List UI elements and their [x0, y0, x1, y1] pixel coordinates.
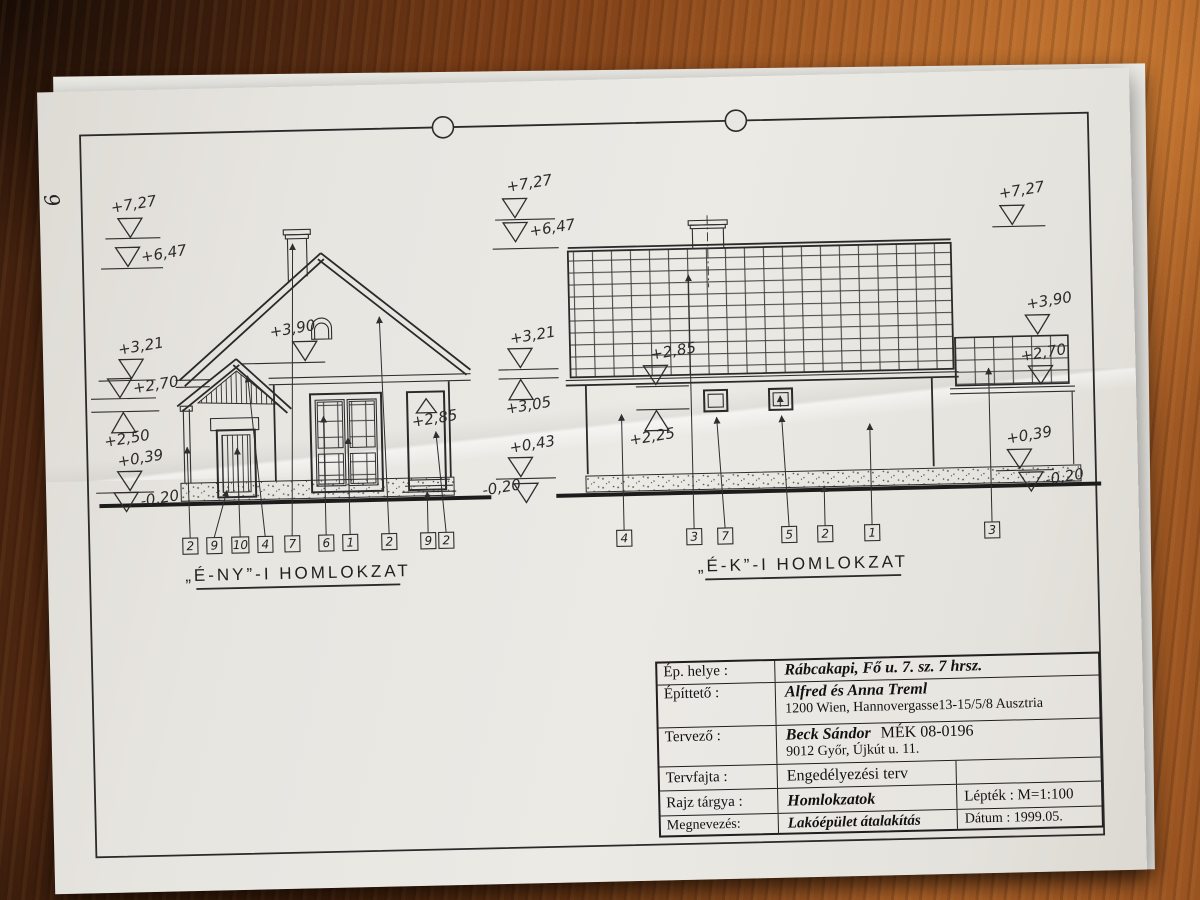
level-marker: +2,85	[410, 398, 459, 431]
svg-text:4: 4	[620, 531, 628, 545]
drawing-title-right: „É-K”-I HOMLOKZAT	[698, 552, 909, 580]
field-label: Építtető :	[658, 683, 777, 728]
svg-text:+2,85: +2,85	[410, 406, 458, 431]
level-marker: +0,43	[495, 432, 557, 480]
field-value-note: MÉK 08-0196	[881, 723, 974, 742]
ref-number-box: 10	[232, 537, 249, 553]
elevation-north-east	[550, 207, 1101, 496]
level-marker: +6,47	[100, 241, 188, 269]
level-marker: +7,27	[494, 170, 555, 220]
level-marker: +2,50	[91, 411, 160, 451]
svg-text:+7,27: +7,27	[997, 177, 1046, 202]
wooden-table-background: 9	[0, 0, 1200, 900]
french-door	[310, 393, 383, 493]
svg-text:3: 3	[988, 523, 996, 537]
level-marker: +3,90	[239, 316, 325, 364]
level-marker: +3,21	[497, 322, 558, 370]
field-value: Homlokzatok	[787, 790, 875, 809]
svg-text:4: 4	[261, 537, 269, 551]
ref-number-box: 6	[319, 535, 334, 551]
svg-text:+3,21: +3,21	[509, 323, 557, 348]
svg-text:-0,20: -0,20	[139, 486, 180, 510]
punch-hole-left	[432, 117, 453, 138]
field-aux-date: Dátum : 1999.05.	[957, 807, 1102, 829]
field-label: Tervfajta :	[660, 765, 778, 790]
title-block: Ép. helye : Rábcakapi, Fő u. 7. sz. 7 hr…	[655, 652, 1104, 838]
drawing-title-left: „É-NY”-I HOMLOKZAT	[185, 561, 411, 589]
small-window-2	[769, 388, 792, 410]
svg-text:2: 2	[186, 539, 194, 553]
svg-text:2: 2	[385, 535, 393, 549]
level-marker: +3,05	[499, 378, 560, 418]
ref-number-box: 9	[421, 533, 436, 549]
level-marker: +2,70	[90, 372, 180, 399]
field-value: Rábcakapi, Fő u. 7. sz. 7 hrsz.	[784, 657, 982, 678]
field-label: Tervező :	[659, 726, 778, 767]
level-marker: +3,90	[1025, 288, 1074, 334]
level-marker: +7,27	[991, 177, 1047, 227]
svg-text:9: 9	[424, 534, 432, 548]
svg-text:7: 7	[721, 529, 729, 543]
svg-text:2: 2	[821, 527, 829, 541]
svg-text:3: 3	[690, 530, 698, 544]
level-marker: +3,21	[98, 333, 166, 381]
svg-text:1: 1	[346, 535, 354, 549]
svg-text:+2,50: +2,50	[103, 426, 151, 451]
svg-text:9: 9	[210, 538, 218, 552]
level-marker: +0,39	[95, 445, 165, 493]
field-value: Lakóépület átalakítás	[788, 813, 921, 832]
level-marker: +0,39	[995, 422, 1054, 471]
svg-text:+7,27: +7,27	[110, 192, 159, 217]
ref-number-box: 4	[258, 536, 273, 552]
punch-hole-right	[725, 110, 746, 131]
svg-text:2: 2	[442, 533, 450, 547]
svg-text:+3,90: +3,90	[1025, 288, 1073, 313]
field-label: Megnevezés:	[661, 814, 779, 836]
drawing-sheet: 9	[37, 68, 1147, 895]
ref-number-box: 5	[782, 526, 797, 542]
small-window-1	[704, 390, 727, 412]
ref-number-box: 3	[985, 522, 1000, 538]
svg-text:+0,43: +0,43	[508, 432, 556, 457]
ref-number-box: 2	[439, 532, 454, 548]
ref-number-box: 2	[183, 538, 198, 554]
svg-text:+0,39: +0,39	[1005, 422, 1053, 447]
svg-text:5: 5	[785, 527, 793, 541]
svg-text:+7,27: +7,27	[505, 171, 554, 196]
level-markers-right-column: +7,27 +3,90 +2,70 +0,39 -0,20	[989, 177, 1085, 492]
svg-text:+6,47: +6,47	[140, 241, 189, 266]
svg-text:+3,21: +3,21	[117, 333, 165, 358]
ref-number-box: 9	[207, 537, 222, 553]
svg-text:7: 7	[288, 537, 296, 551]
ref-number-box: 7	[718, 528, 733, 544]
ref-number-box: 2	[382, 533, 397, 549]
svg-text:6: 6	[322, 536, 330, 550]
field-aux-scale: Lépték : M=1:100	[956, 781, 1102, 809]
level-marker: +7,27	[104, 191, 160, 239]
level-marker: +2,25	[627, 409, 690, 449]
svg-text:„É-K”-I HOMLOKZAT: „É-K”-I HOMLOKZAT	[698, 552, 909, 576]
field-label: Rajz tárgya :	[660, 789, 779, 816]
ref-number-box: 4	[617, 530, 632, 546]
svg-text:„É-NY”-I HOMLOKZAT: „É-NY”-I HOMLOKZAT	[185, 561, 411, 585]
svg-text:1: 1	[868, 526, 876, 540]
svg-text:+2,25: +2,25	[628, 424, 676, 449]
field-value: Beck Sándor	[786, 725, 871, 744]
main-roof	[568, 243, 954, 378]
field-label: Ép. helye :	[657, 661, 775, 685]
ref-number-box: 3	[687, 529, 702, 545]
level-marker: -0,20	[114, 486, 181, 512]
field-aux	[955, 758, 1100, 784]
ref-number-box: 7	[285, 536, 300, 552]
ref-number-box: 2	[818, 526, 833, 542]
svg-text:10: 10	[233, 538, 249, 552]
ref-number-box: 1	[865, 524, 880, 540]
level-markers-middle-column: +7,27 +6,47 +3,21 +3,05 +0,43 -0,20	[474, 170, 583, 504]
svg-text:+0,39: +0,39	[116, 445, 164, 470]
level-markers-left-column: +7,27 +6,47 +3,21 +2,70 +2,50 +0,39 -0,2…	[86, 185, 460, 513]
svg-text:+2,70: +2,70	[132, 372, 180, 397]
ref-number-box: 1	[343, 534, 358, 550]
